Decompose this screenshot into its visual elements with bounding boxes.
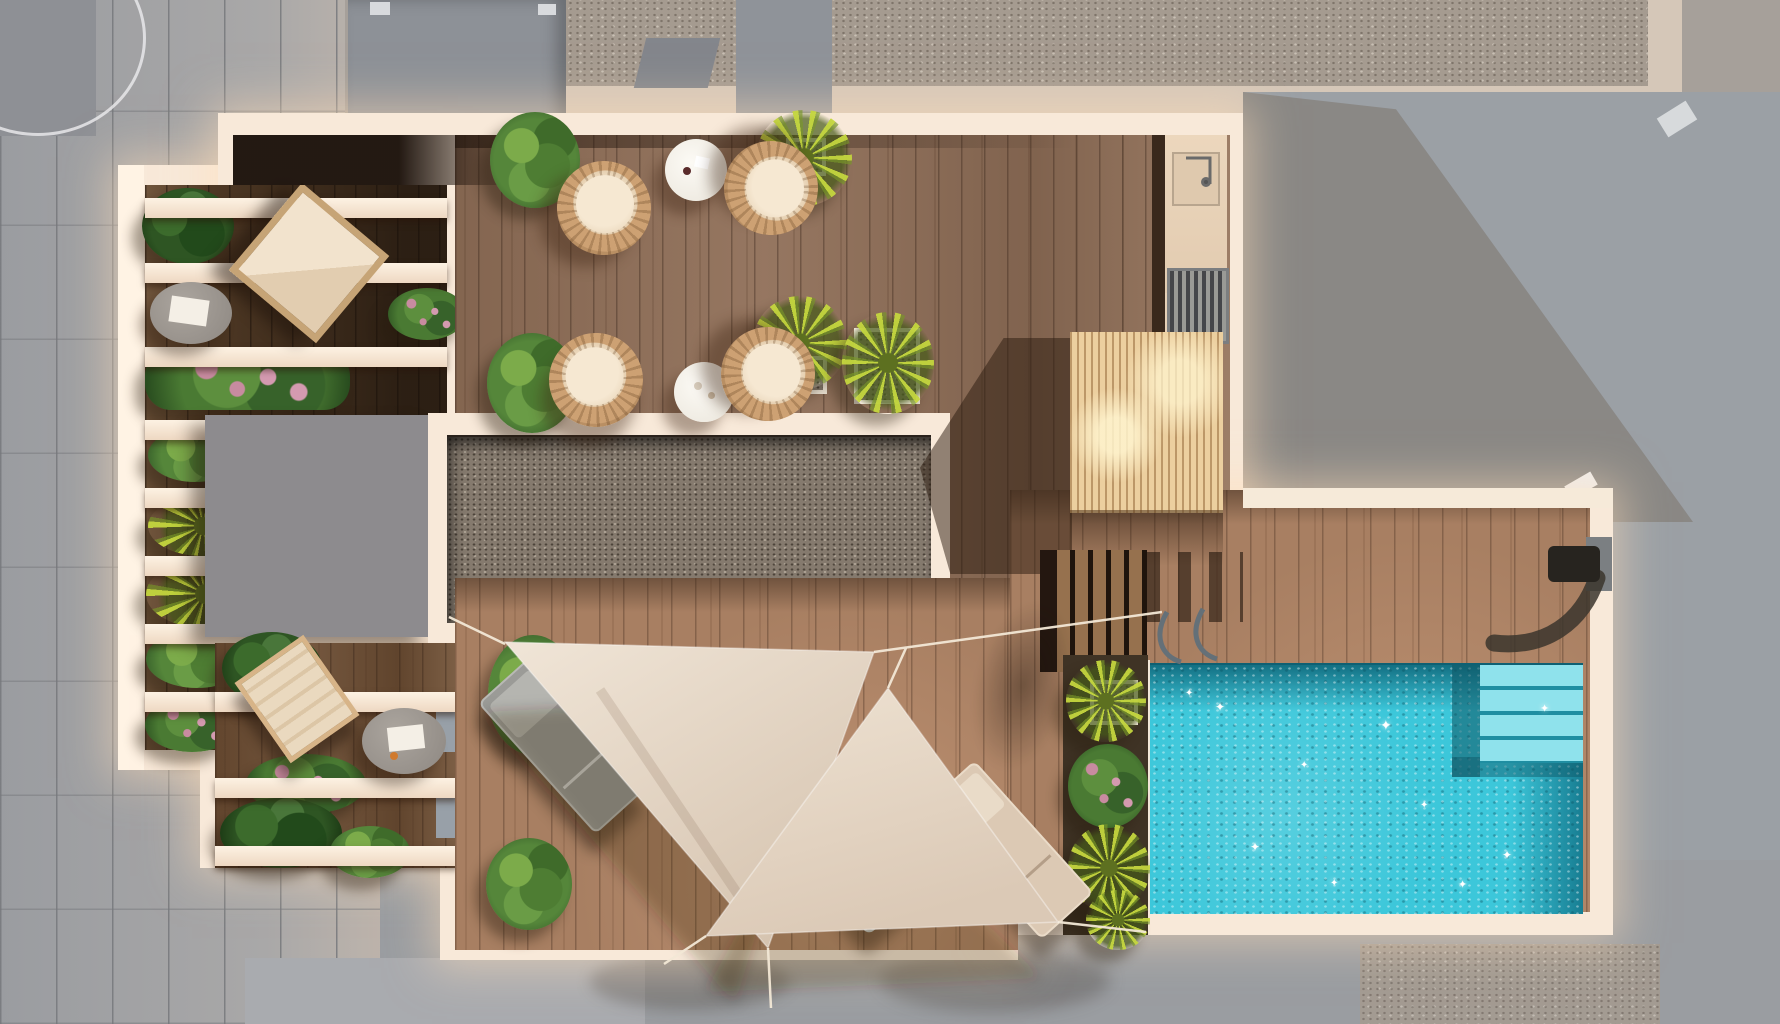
overlay-graphics — [0, 0, 1780, 1024]
pool-water-feature — [1494, 537, 1612, 644]
rooftop-render — [0, 0, 1780, 1024]
sink-faucet — [1186, 158, 1210, 186]
pool-ladder — [1160, 609, 1217, 662]
